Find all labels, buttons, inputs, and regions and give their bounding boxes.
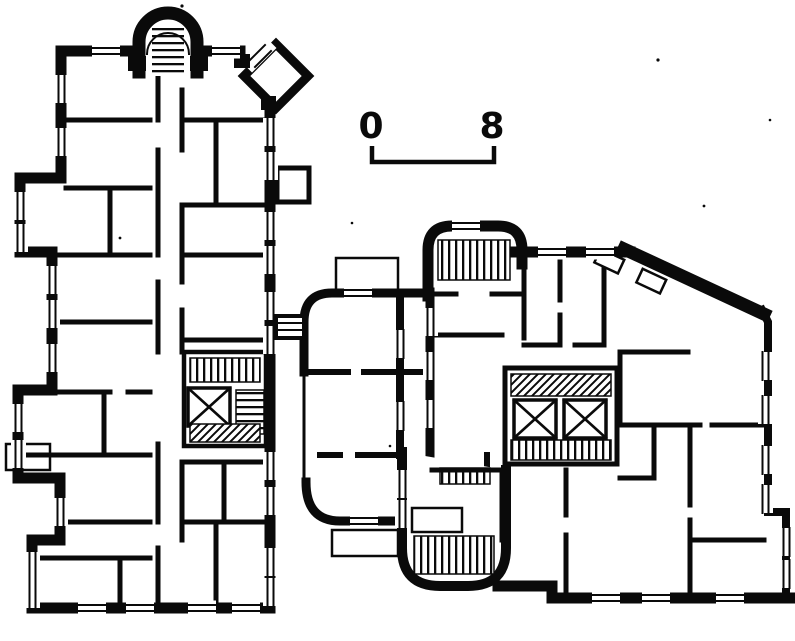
window-glyph <box>13 192 28 220</box>
window-glyph <box>212 44 240 59</box>
window-glyph <box>126 601 154 616</box>
window-glyph <box>779 560 794 588</box>
east-wing <box>395 219 794 606</box>
stair-flight-icon <box>414 536 494 574</box>
window-glyph <box>263 578 278 606</box>
window-glyph <box>54 128 69 156</box>
balcony-outline <box>332 530 398 556</box>
window-glyph <box>758 446 773 474</box>
tower-base-poche <box>128 56 146 71</box>
window-glyph <box>586 245 614 260</box>
floor-plan-drawing: 0 8 <box>0 0 795 641</box>
window-glyph <box>54 75 69 103</box>
window-glyph <box>350 514 378 529</box>
connector-north-wall <box>304 293 430 372</box>
window-glyph <box>45 300 60 328</box>
window-glyph <box>263 246 278 274</box>
scale-bar-end-label: 8 <box>479 106 504 147</box>
balcony-bay <box>277 168 309 202</box>
window-glyph <box>642 591 670 606</box>
window-glyph <box>263 548 278 576</box>
floor-plan-page: 0 8 <box>0 0 795 641</box>
window-glyph <box>423 400 438 428</box>
stair-flight-icon <box>511 440 611 460</box>
west-wing <box>6 13 309 616</box>
window-glyph <box>779 528 794 556</box>
window-glyph <box>45 344 60 372</box>
window-glyph <box>45 266 60 294</box>
window-glyph <box>716 591 744 606</box>
window-glyph <box>452 219 480 234</box>
window-glyph <box>53 498 68 526</box>
window-glyph <box>263 152 278 180</box>
stair-flight-icon <box>511 374 611 396</box>
window-glyph <box>758 396 773 424</box>
window-glyph <box>393 330 408 358</box>
window-glyph <box>11 440 26 468</box>
window-glyph <box>758 485 773 513</box>
scale-bar: 0 8 <box>358 106 504 162</box>
window-glyph <box>592 591 620 606</box>
stair-flight-icon <box>438 240 510 280</box>
window-glyph <box>25 580 40 608</box>
window-glyph <box>78 601 106 616</box>
elevator-x-icon <box>514 400 556 438</box>
window-glyph <box>25 552 40 580</box>
window-glyph <box>538 245 566 260</box>
tower-base-poche <box>190 56 208 71</box>
east-stair-core <box>505 368 617 464</box>
elevator-x-icon <box>188 388 230 426</box>
window-glyph <box>758 352 773 380</box>
balcony-outline <box>336 258 398 290</box>
window-glyph <box>423 352 438 380</box>
window-bay <box>276 316 304 338</box>
west-stair-core <box>184 352 266 446</box>
stair-flight-icon <box>190 358 260 382</box>
window-glyph <box>423 308 438 336</box>
window-glyph <box>393 402 408 430</box>
elevator-x-icon <box>564 400 606 438</box>
window-glyph <box>263 487 278 515</box>
window-glyph <box>13 224 28 252</box>
window-glyph <box>263 212 278 240</box>
arched-stair-tower <box>128 13 208 76</box>
wall-junction-poche <box>261 96 276 110</box>
scale-bar-line <box>372 146 494 162</box>
stair-flight-icon <box>190 424 260 442</box>
stair-landing <box>412 508 462 532</box>
window-glyph <box>395 500 410 528</box>
window-glyph <box>263 452 278 480</box>
window-glyph <box>395 470 410 498</box>
scale-bar-start-label: 0 <box>358 106 383 147</box>
window-glyph <box>344 286 372 301</box>
window-glyph <box>188 601 216 616</box>
window-glyph <box>11 404 26 432</box>
window-glyph <box>232 601 260 616</box>
window-glyph <box>92 44 120 59</box>
window-glyph <box>263 118 278 146</box>
